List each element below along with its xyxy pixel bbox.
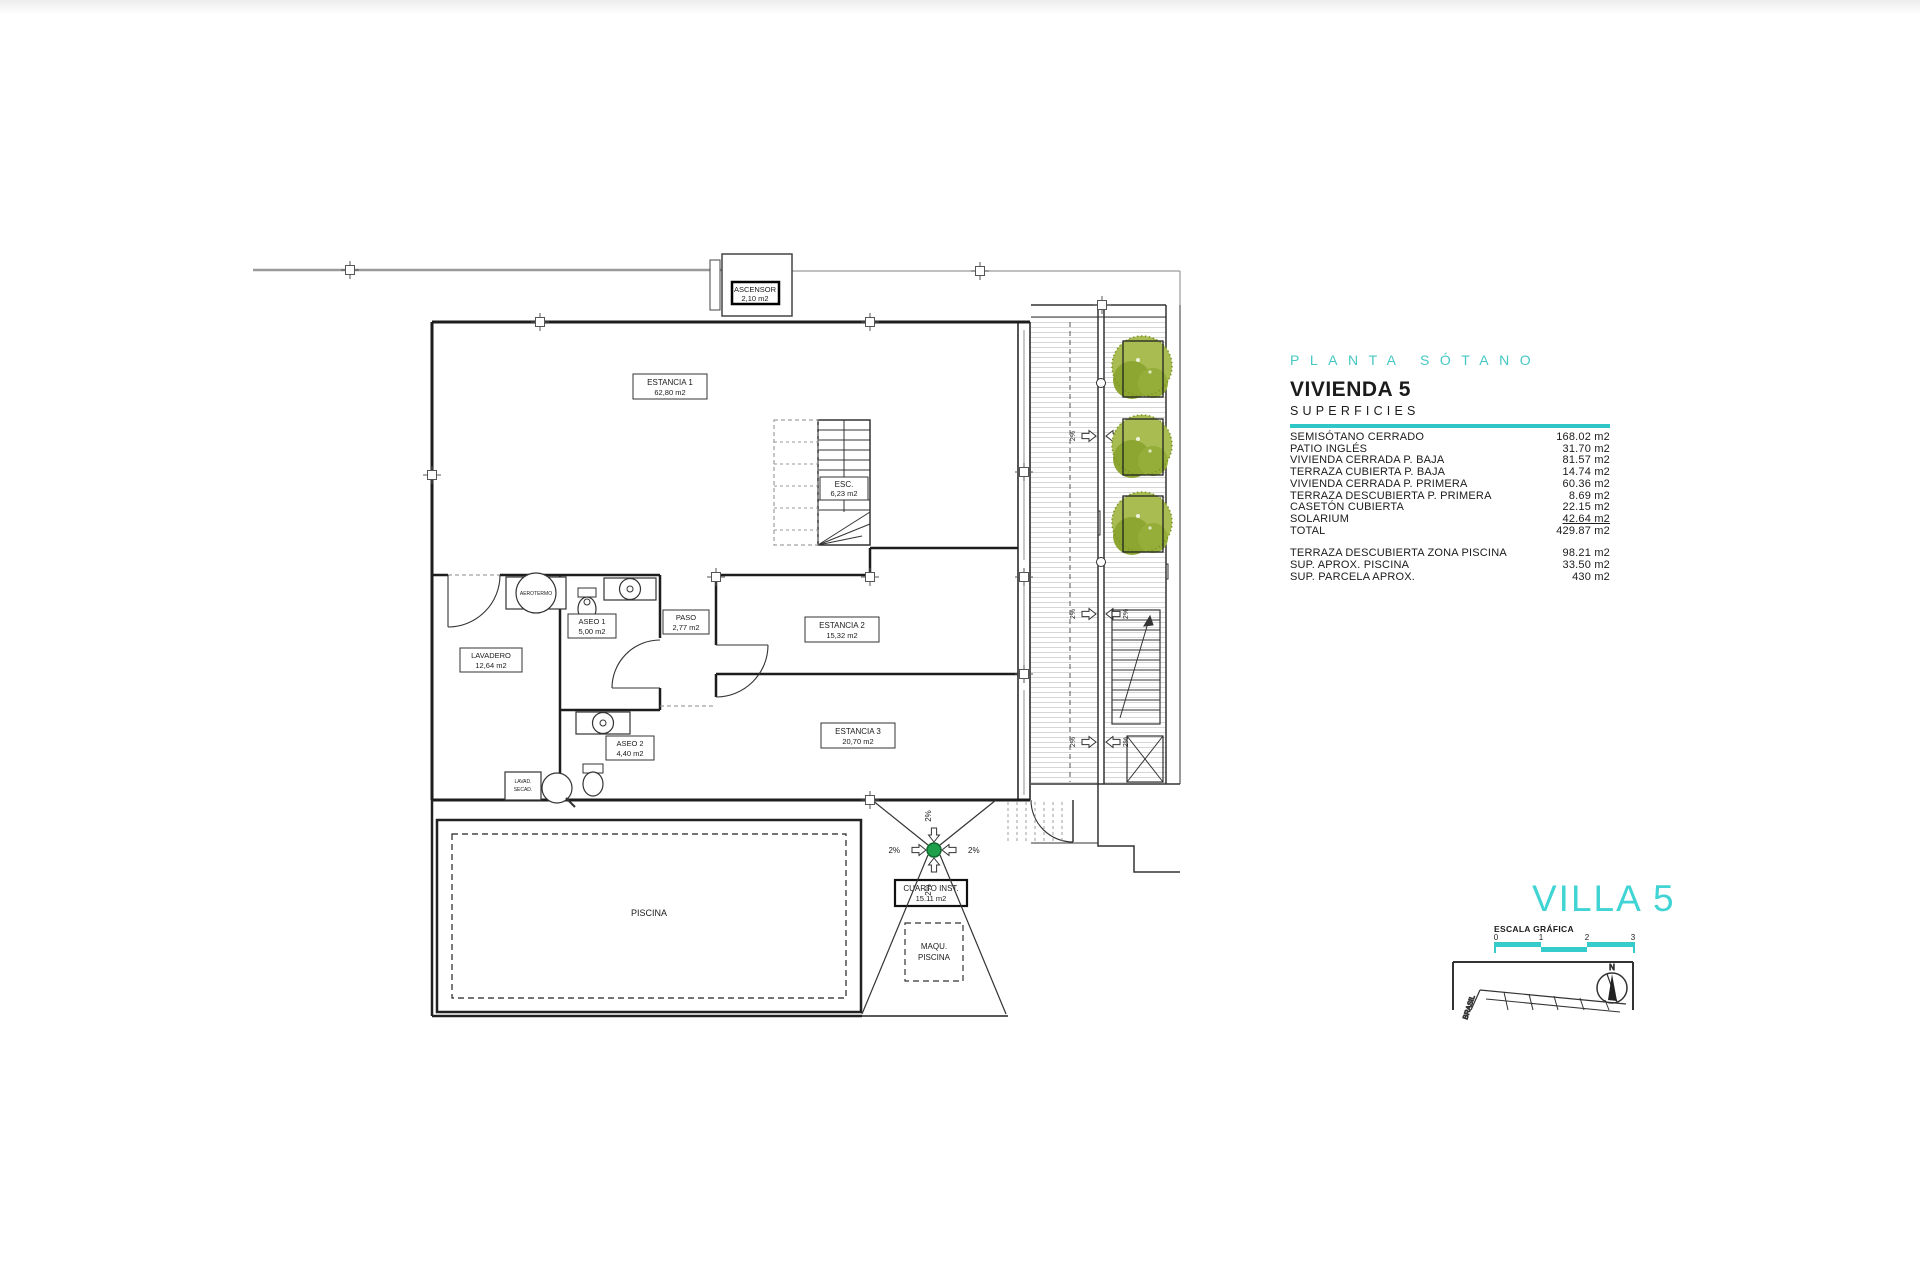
accent-bar (1290, 424, 1610, 428)
trees (1112, 336, 1172, 555)
svg-text:2%: 2% (968, 846, 980, 855)
table-row: SUP. APROX. PISCINA33.50 m2 (1290, 560, 1610, 572)
svg-text:ASCENSOR: ASCENSOR (734, 285, 777, 294)
label-aerotermo: AEROTERMO (520, 591, 552, 597)
column-markers (341, 261, 1111, 809)
room-label-estancia-1: ESTANCIA 1 62,80 m2 (633, 374, 707, 399)
floor-plan-drawing: ASCENSOR 2,10 m2 (0, 0, 1920, 1280)
villa-title: VILLA 5 (1532, 878, 1676, 920)
superficies-subheading: SUPERFICIES (1290, 404, 1610, 418)
scale-tick: 1 (1539, 933, 1543, 942)
scale-tick: 2 (1585, 933, 1589, 942)
tree-icon (1112, 415, 1172, 478)
street-label: BRASIL (1462, 995, 1476, 1021)
table-row: SUP. PARCELA APROX.430 m2 (1290, 572, 1610, 584)
table-row: VIVIENDA CERRADA P. PRIMERA60.36 m2 (1290, 479, 1610, 491)
scale-tick: 3 (1631, 933, 1635, 942)
blueprint-page: ASCENSOR 2,10 m2 (0, 0, 1920, 1280)
room-label-piscina: PISCINA (631, 908, 667, 918)
door-swings (448, 575, 1073, 842)
table-row: SEMISÓTANO CERRADO168.02 m2 (1290, 432, 1610, 444)
svg-text:ESTANCIA 3: ESTANCIA 3 (835, 727, 881, 736)
pool (432, 800, 1008, 1016)
svg-text:ASEO 2: ASEO 2 (616, 739, 643, 748)
tree-icon (1112, 492, 1172, 555)
room-label-estancia-2: ESTANCIA 2 15,32 m2 (805, 617, 879, 642)
svg-text:MAQU.: MAQU. (921, 942, 947, 951)
svg-text:ESTANCIA 2: ESTANCIA 2 (819, 621, 865, 630)
svg-text:12,64 m2: 12,64 m2 (475, 661, 506, 670)
site-fragment: BRASIL N (1453, 962, 1633, 1020)
graphic-scale-label: ESCALA GRÁFICA (1494, 924, 1574, 934)
plan-title: PLANTA SÓTANO (1290, 352, 1610, 368)
sanitary-fixtures (505, 573, 656, 807)
room-label-maqu-piscina: MAQU. PISCINA (905, 923, 963, 981)
vivienda-heading: VIVIENDA 5 (1290, 378, 1610, 402)
surface-panel: PLANTA SÓTANO VIVIENDA 5 SUPERFICIES SEM… (1290, 352, 1610, 583)
graphic-scale-bar (1496, 942, 1634, 953)
svg-text:LAVADERO: LAVADERO (471, 651, 511, 660)
svg-text:LAVAD.: LAVAD. (514, 779, 531, 785)
room-label-esc: ESC. 6,23 m2 (820, 477, 868, 500)
svg-text:5,00 m2: 5,00 m2 (578, 627, 605, 636)
room-label-lavadero: LAVADERO 12,64 m2 (460, 648, 522, 672)
room-label-aseo-1: ASEO 1 5,00 m2 (568, 614, 616, 638)
tree-icon (1112, 336, 1172, 399)
svg-text:PASO: PASO (676, 613, 696, 622)
room-label-paso: PASO 2,77 m2 (663, 610, 709, 634)
scale-tick: 0 (1494, 933, 1498, 942)
svg-text:ESC.: ESC. (835, 480, 854, 489)
drain-icon (927, 843, 941, 857)
building-walls (432, 322, 1030, 800)
svg-text:SECAD.: SECAD. (514, 787, 533, 793)
room-label-estancia-3: ESTANCIA 3 20,70 m2 (821, 723, 895, 748)
svg-text:ASEO 1: ASEO 1 (578, 617, 605, 626)
svg-text:6,23 m2: 6,23 m2 (830, 489, 857, 498)
room-label-aseo-2: ASEO 2 4,40 m2 (606, 736, 654, 760)
svg-text:2%: 2% (1070, 431, 1077, 441)
svg-text:2%: 2% (924, 810, 933, 822)
svg-text:ESTANCIA 1: ESTANCIA 1 (647, 378, 693, 387)
svg-text:2%: 2% (888, 846, 900, 855)
svg-text:PISCINA: PISCINA (918, 953, 951, 962)
svg-text:2,77 m2: 2,77 m2 (672, 623, 699, 632)
table-row-solarium: SOLARIUM42.64 m2 (1290, 514, 1610, 526)
table-row-total: TOTAL429.87 m2 (1290, 526, 1610, 538)
svg-text:N: N (1609, 963, 1615, 972)
svg-text:4,40 m2: 4,40 m2 (616, 749, 643, 758)
svg-text:2%: 2% (1070, 609, 1077, 619)
svg-text:2%: 2% (1070, 737, 1077, 747)
exit-steps (1008, 784, 1180, 872)
svg-text:20,70 m2: 20,70 m2 (842, 737, 873, 746)
svg-text:15,32 m2: 15,32 m2 (826, 631, 857, 640)
north-arrow-icon: N (1597, 963, 1627, 1003)
svg-text:2%: 2% (924, 884, 933, 896)
svg-text:2,10 m2: 2,10 m2 (741, 294, 768, 303)
svg-text:62,80 m2: 62,80 m2 (654, 388, 685, 397)
surface-table: SEMISÓTANO CERRADO168.02 m2 PATIO INGLÉS… (1290, 432, 1610, 583)
